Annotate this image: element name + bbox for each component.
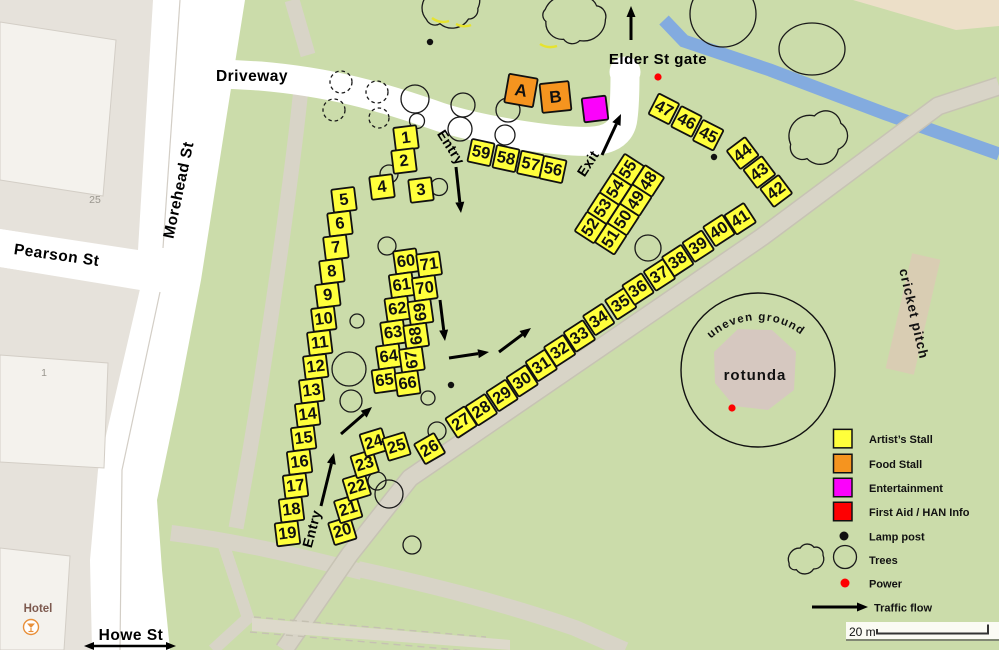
svg-text:Howe St: Howe St [99, 627, 164, 644]
svg-text:12: 12 [306, 357, 326, 377]
svg-text:Artist’s Stall: Artist’s Stall [869, 434, 933, 446]
svg-text:67: 67 [402, 349, 422, 370]
svg-text:First Aid / HAN Info: First Aid / HAN Info [869, 507, 970, 519]
svg-text:13: 13 [301, 380, 321, 400]
svg-text:69: 69 [410, 302, 430, 323]
svg-text:14: 14 [297, 404, 318, 424]
svg-text:56: 56 [542, 159, 564, 180]
svg-text:70: 70 [414, 278, 435, 298]
svg-text:71: 71 [419, 254, 440, 274]
svg-text:17: 17 [285, 476, 305, 496]
svg-text:Driveway: Driveway [216, 68, 288, 85]
svg-text:Power: Power [869, 579, 903, 591]
svg-text:Elder St gate: Elder St gate [609, 51, 707, 68]
svg-text:58: 58 [495, 148, 517, 169]
svg-text:B: B [548, 87, 562, 107]
svg-text:Hotel: Hotel [24, 603, 53, 615]
svg-text:57: 57 [520, 154, 542, 175]
svg-text:18: 18 [281, 500, 301, 520]
svg-text:63: 63 [383, 323, 404, 343]
svg-text:62: 62 [387, 299, 408, 319]
svg-text:Entertainment: Entertainment [869, 483, 943, 495]
svg-text:rotunda: rotunda [724, 367, 787, 384]
svg-text:59: 59 [470, 142, 492, 163]
svg-text:66: 66 [397, 373, 418, 393]
svg-text:68: 68 [406, 325, 426, 346]
svg-text:25: 25 [89, 194, 101, 206]
svg-text:16: 16 [289, 452, 309, 472]
svg-text:1: 1 [41, 367, 47, 379]
svg-text:19: 19 [277, 524, 297, 544]
svg-text:Traffic flow: Traffic flow [874, 603, 933, 615]
svg-text:61: 61 [391, 275, 412, 295]
svg-text:11: 11 [310, 333, 330, 353]
svg-text:Lamp post: Lamp post [869, 532, 925, 544]
svg-text:Trees: Trees [869, 555, 898, 567]
svg-text:Food Stall: Food Stall [869, 459, 922, 471]
svg-text:10: 10 [314, 309, 334, 329]
svg-text:15: 15 [293, 428, 313, 448]
svg-text:64: 64 [378, 346, 399, 366]
svg-text:20 m: 20 m [849, 625, 876, 639]
svg-text:65: 65 [374, 370, 395, 390]
svg-text:60: 60 [396, 251, 417, 271]
